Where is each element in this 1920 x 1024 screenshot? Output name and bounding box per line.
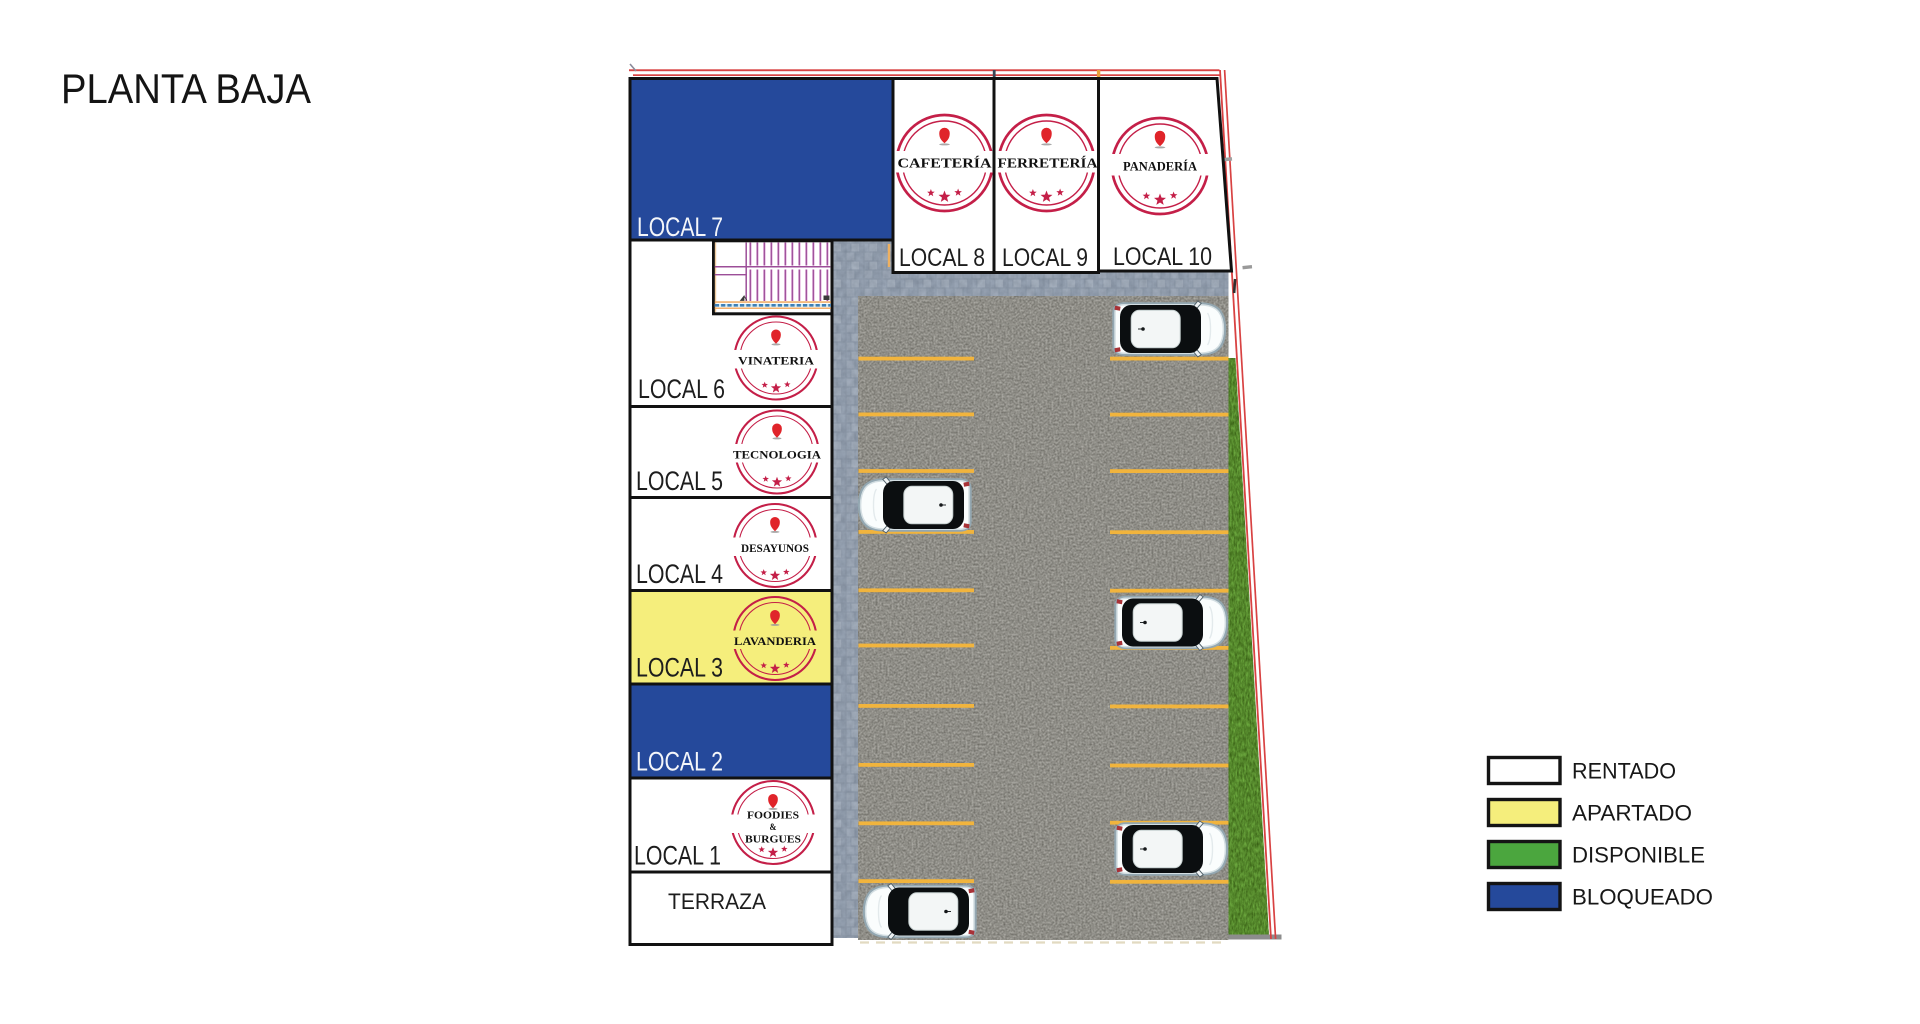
svg-text:LOCAL 6: LOCAL 6 xyxy=(638,374,725,404)
svg-text:DISPONIBLE: DISPONIBLE xyxy=(1572,843,1705,868)
svg-text:LOCAL 1: LOCAL 1 xyxy=(634,841,721,871)
svg-text:LOCAL 5: LOCAL 5 xyxy=(636,466,723,496)
svg-text:LOCAL 4: LOCAL 4 xyxy=(636,559,723,589)
svg-text:BLOQUEADO: BLOQUEADO xyxy=(1572,885,1713,910)
svg-text:BURGUES: BURGUES xyxy=(745,835,801,846)
svg-text:DESAYUNOS: DESAYUNOS xyxy=(741,543,809,555)
svg-text:TECNOLOGIA: TECNOLOGIA xyxy=(733,449,822,461)
svg-text:PANADERÍA: PANADERÍA xyxy=(1123,160,1197,174)
svg-text:TERRAZA: TERRAZA xyxy=(668,889,766,914)
svg-text:LOCAL 2: LOCAL 2 xyxy=(636,747,723,777)
svg-text:APARTADO: APARTADO xyxy=(1572,801,1692,826)
svg-text:LOCAL 9: LOCAL 9 xyxy=(1002,244,1088,272)
svg-text:FOODIES: FOODIES xyxy=(747,811,799,822)
svg-text:LAVANDERIA: LAVANDERIA xyxy=(734,636,817,648)
svg-text:LOCAL 10: LOCAL 10 xyxy=(1113,243,1212,271)
svg-text:&: & xyxy=(770,822,777,832)
svg-text:RENTADO: RENTADO xyxy=(1572,759,1676,784)
svg-text:LOCAL 3: LOCAL 3 xyxy=(636,653,723,683)
svg-text:LOCAL 7: LOCAL 7 xyxy=(637,212,723,242)
svg-text:PLANTA BAJA: PLANTA BAJA xyxy=(61,65,311,112)
svg-text:LOCAL 8: LOCAL 8 xyxy=(899,244,985,272)
svg-text:VINATERIA: VINATERIA xyxy=(738,355,815,367)
svg-text:CAFETERÍA: CAFETERÍA xyxy=(898,156,992,171)
svg-text:FERRETERÍA: FERRETERÍA xyxy=(998,156,1098,171)
